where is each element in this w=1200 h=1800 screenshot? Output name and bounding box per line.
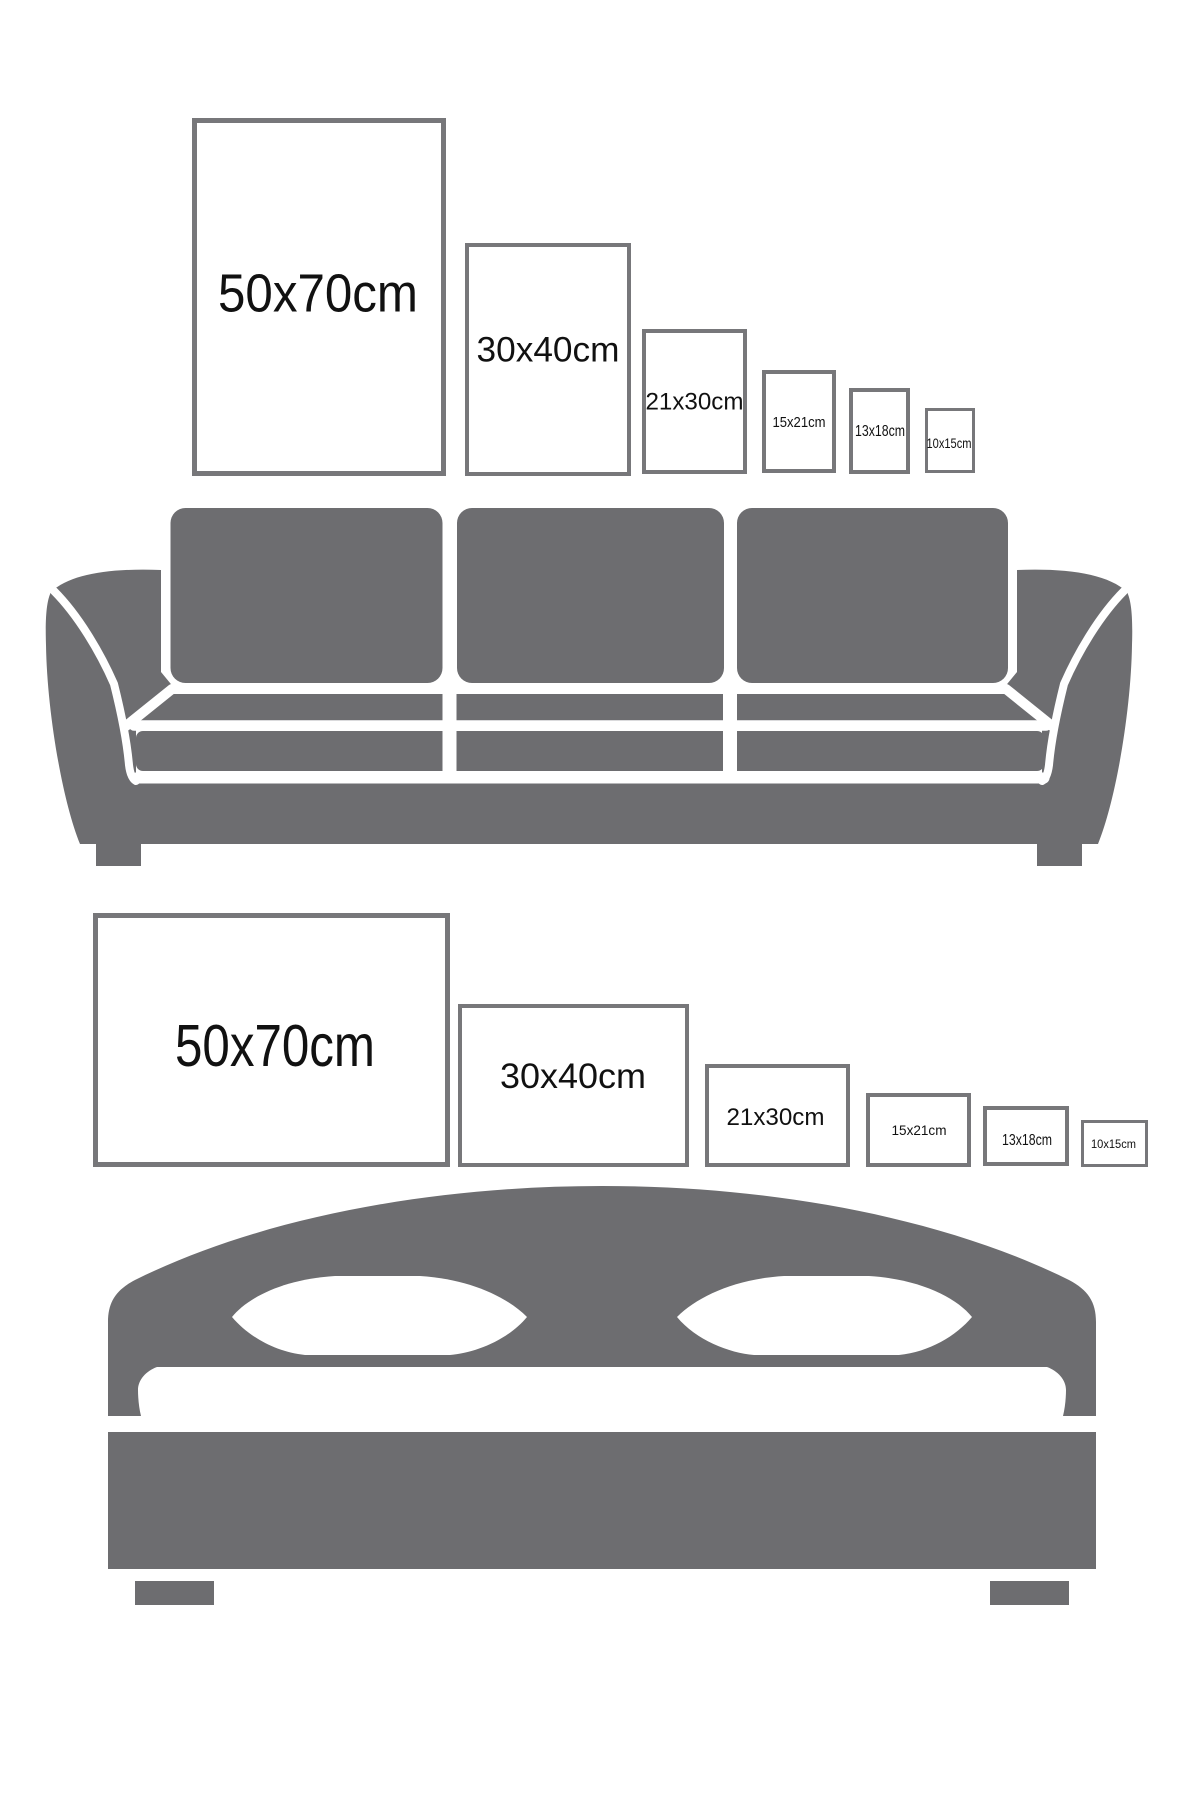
svg-text:50x70cm: 50x70cm <box>218 264 418 324</box>
svg-text:30x40cm: 30x40cm <box>477 330 620 370</box>
svg-text:10x15cm: 10x15cm <box>927 435 972 451</box>
svg-text:13x18cm: 13x18cm <box>855 423 905 440</box>
svg-text:21x30cm: 21x30cm <box>727 1104 825 1131</box>
svg-text:10x15cm: 10x15cm <box>1091 1137 1136 1151</box>
svg-text:13x18cm: 13x18cm <box>1002 1132 1052 1149</box>
svg-text:15x21cm: 15x21cm <box>892 1122 947 1138</box>
svg-text:21x30cm: 21x30cm <box>646 389 744 416</box>
svg-text:15x21cm: 15x21cm <box>773 415 826 431</box>
svg-text:50x70cm: 50x70cm <box>175 1013 375 1079</box>
svg-text:30x40cm: 30x40cm <box>500 1056 646 1096</box>
